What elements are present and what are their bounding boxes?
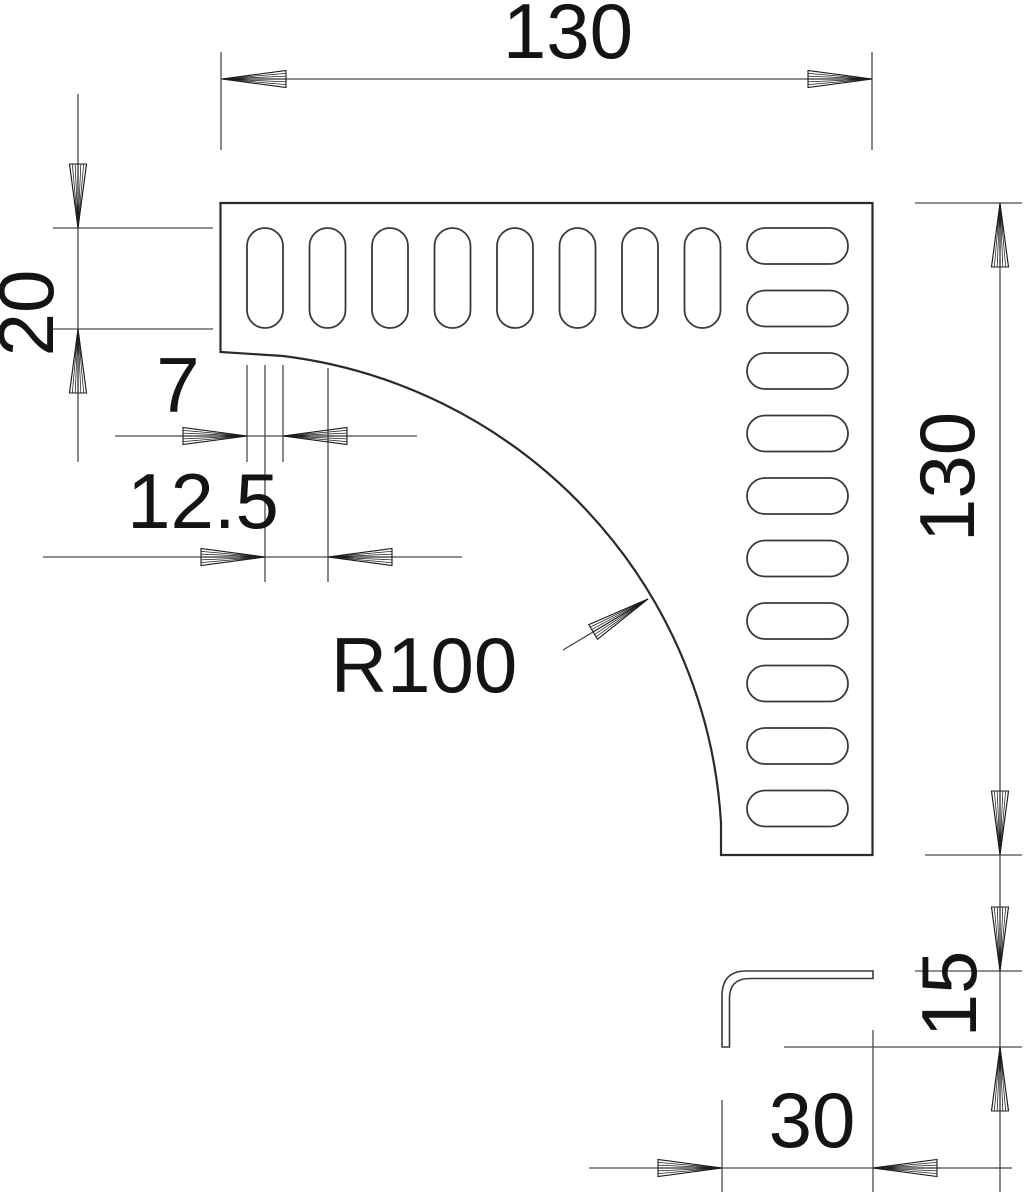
horizontal-slot: [747, 541, 848, 577]
vertical-slot: [497, 228, 533, 328]
horizontal-slot: [747, 416, 848, 452]
arrow-right-height-bottom: [992, 791, 1009, 855]
dim-label-slot-length: 20: [0, 270, 70, 357]
arrow-profile-width-right: [873, 1160, 937, 1177]
arrow-slot-length-top: [70, 164, 87, 228]
arrow-slot-pitch-right: [328, 549, 392, 566]
vertical-slot: [560, 228, 596, 328]
vertical-slot: [372, 228, 408, 328]
vertical-slot: [310, 228, 346, 328]
arrow-profile-height-top: [992, 907, 1009, 971]
arrow-radius-leader: [589, 599, 648, 639]
horizontal-slot: [747, 603, 848, 639]
horizontal-slot: [747, 728, 848, 764]
dim-label-profile-height: 15: [905, 951, 993, 1038]
horizontal-slot: [747, 353, 848, 389]
vertical-slot: [685, 228, 721, 328]
horizontal-slot: [747, 291, 848, 327]
vertical-slot: [247, 228, 283, 328]
horizontal-slot: [747, 478, 848, 514]
vertical-slot: [622, 228, 658, 328]
arrow-top-width-right: [808, 71, 872, 88]
arrow-right-height-top: [992, 203, 1009, 267]
arrow-slot-width-right: [283, 428, 347, 445]
arrow-top-width-left: [222, 71, 286, 88]
arrow-slot-width-left: [183, 428, 247, 445]
technical-drawing: 130 20 7 12.5 R100 130 15 30: [0, 0, 1024, 1198]
drawing-canvas: 130 20 7 12.5 R100 130 15 30: [0, 0, 1024, 1198]
horizontal-slot: [747, 666, 848, 702]
vertical-slot: [435, 228, 471, 328]
dim-label-top-width: 130: [503, 0, 633, 75]
dim-label-right-height: 130: [903, 412, 991, 542]
arrow-slot-pitch-left: [201, 549, 265, 566]
dim-label-profile-width: 30: [769, 1076, 856, 1164]
arrow-slot-length-bottom: [70, 329, 87, 393]
profile-cross-section: [722, 971, 873, 1047]
dim-label-slot-width: 7: [156, 341, 199, 429]
dim-label-slot-pitch: 12.5: [127, 457, 279, 545]
dim-label-corner-radius: R100: [331, 621, 517, 709]
arrow-profile-height-bottom: [992, 1047, 1009, 1111]
horizontal-slot: [747, 791, 848, 827]
arrow-profile-width-left: [658, 1160, 722, 1177]
horizontal-slot: [747, 228, 848, 264]
